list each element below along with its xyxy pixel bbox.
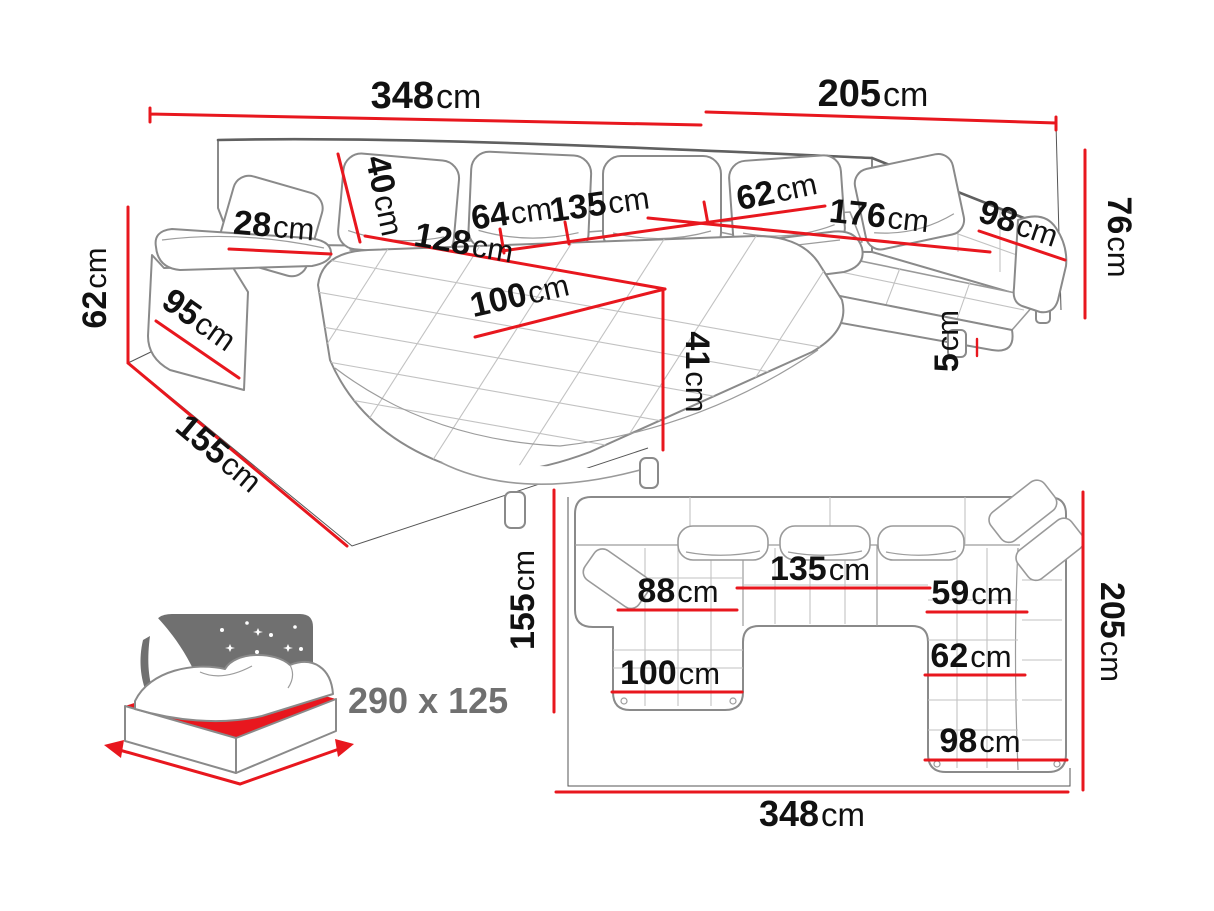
label-plan-59: 59cm bbox=[931, 574, 1012, 612]
label-plan-205: 205cm bbox=[1093, 582, 1131, 682]
label-plan-98: 98cm bbox=[939, 722, 1020, 760]
label-348: 348cm bbox=[371, 75, 482, 117]
sleeping-function-icon: 290 x 125 bbox=[104, 608, 508, 784]
arrow-head-left bbox=[104, 740, 124, 758]
label-plan-100: 100cm bbox=[620, 654, 720, 692]
label-plan-348: 348cm bbox=[759, 793, 865, 834]
plan-view: 155cm 88cm 135cm 59cm 205cm 62cm 100cm 9… bbox=[504, 476, 1131, 834]
diagram-svg: 348cm 205cm 76cm 62cm 155cm 95cm 28cm 40… bbox=[0, 0, 1214, 911]
foot-chaise-side bbox=[640, 458, 658, 488]
arrow-head-right bbox=[335, 739, 354, 757]
label-plan-155: 155cm bbox=[504, 550, 542, 650]
label-62-left: 62cm bbox=[76, 247, 114, 328]
label-plan-135: 135cm bbox=[770, 550, 870, 588]
chaise-top bbox=[318, 236, 843, 472]
perspective-view: 348cm 205cm 76cm 62cm 155cm 95cm 28cm 40… bbox=[76, 73, 1138, 546]
sleeping-size-label: 290 x 125 bbox=[348, 680, 508, 721]
label-plan-62: 62cm bbox=[930, 637, 1011, 675]
label-155: 155cm bbox=[169, 407, 270, 500]
label-76: 76cm bbox=[1100, 196, 1138, 277]
sofa-dimensions-diagram: 348cm 205cm 76cm 62cm 155cm 95cm 28cm 40… bbox=[0, 0, 1214, 911]
label-205: 205cm bbox=[818, 73, 929, 115]
label-5: 5cm bbox=[928, 310, 966, 372]
foot-chaise-front bbox=[505, 492, 525, 528]
label-plan-88: 88cm bbox=[637, 572, 718, 610]
label-41: 41cm bbox=[678, 331, 716, 412]
